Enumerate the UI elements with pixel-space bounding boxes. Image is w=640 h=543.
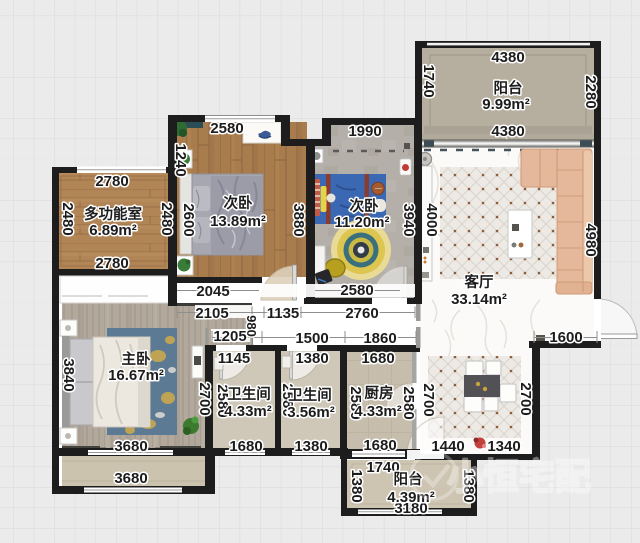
svg-text:11.20m²: 11.20m² (334, 214, 389, 231)
svg-text:2480: 2480 (59, 202, 76, 235)
svg-text:1600: 1600 (549, 329, 582, 346)
svg-text:1380: 1380 (348, 469, 365, 502)
svg-text:3680: 3680 (114, 470, 147, 487)
svg-text:1145: 1145 (218, 350, 251, 367)
svg-text:2105: 2105 (195, 305, 228, 322)
svg-text:13.89m²: 13.89m² (210, 213, 266, 230)
svg-text:卫生间: 卫生间 (288, 386, 332, 404)
svg-text:1205: 1205 (213, 328, 246, 345)
svg-text:3840: 3840 (60, 358, 77, 391)
svg-text:4.33m²: 4.33m² (224, 403, 272, 420)
svg-text:1135: 1135 (267, 305, 300, 322)
svg-text:1990: 1990 (348, 123, 381, 140)
svg-text:1740: 1740 (420, 64, 437, 97)
svg-text:2780: 2780 (95, 173, 128, 190)
svg-text:4980: 4980 (582, 223, 599, 256)
svg-text:1340: 1340 (487, 438, 520, 455)
svg-text:次卧: 次卧 (350, 197, 379, 215)
svg-text:4.33m²: 4.33m² (354, 403, 402, 420)
svg-text:1380: 1380 (294, 438, 327, 455)
svg-text:阳台: 阳台 (394, 470, 423, 488)
svg-text:2280: 2280 (582, 75, 599, 108)
svg-text:6.89m²: 6.89m² (89, 222, 137, 239)
svg-text:2700: 2700 (420, 383, 437, 416)
svg-text:9.99m²: 9.99m² (482, 96, 530, 113)
svg-text:客厅: 客厅 (464, 273, 494, 291)
svg-text:33.14m²: 33.14m² (451, 291, 507, 308)
svg-text:1240: 1240 (172, 143, 189, 176)
svg-text:3.56m²: 3.56m² (287, 404, 335, 421)
svg-text:1680: 1680 (361, 350, 394, 367)
svg-text:2760: 2760 (345, 305, 378, 322)
svg-text:2780: 2780 (95, 255, 128, 272)
svg-text:3880: 3880 (290, 203, 307, 236)
svg-text:3940: 3940 (400, 203, 417, 236)
svg-text:1500: 1500 (295, 330, 328, 347)
svg-text:4000: 4000 (423, 203, 440, 236)
svg-text:厨房: 厨房 (365, 384, 394, 402)
svg-text:阳台: 阳台 (494, 79, 523, 97)
svg-text:2700: 2700 (517, 382, 534, 415)
svg-text:1860: 1860 (363, 330, 396, 347)
svg-text:2600: 2600 (180, 203, 197, 236)
svg-text:2700: 2700 (196, 382, 213, 415)
svg-text:2580: 2580 (400, 386, 417, 419)
svg-text:1380: 1380 (295, 350, 328, 367)
svg-text:2580: 2580 (340, 282, 373, 299)
svg-text:16.67m²: 16.67m² (108, 367, 164, 384)
svg-text:2480: 2480 (158, 202, 175, 235)
svg-text:小恒宅配: 小恒宅配 (447, 456, 591, 497)
svg-text:1680: 1680 (229, 438, 262, 455)
svg-text:3680: 3680 (114, 438, 147, 455)
svg-text:2580: 2580 (210, 120, 243, 137)
svg-text:次卧: 次卧 (224, 194, 253, 212)
svg-text:卫生间: 卫生间 (227, 385, 271, 403)
svg-text:主卧: 主卧 (122, 350, 151, 368)
svg-text:4380: 4380 (491, 123, 524, 140)
svg-text:1680: 1680 (363, 437, 396, 454)
svg-text:多功能室: 多功能室 (84, 205, 142, 223)
svg-text:2045: 2045 (196, 283, 229, 300)
svg-text:4380: 4380 (491, 49, 524, 66)
